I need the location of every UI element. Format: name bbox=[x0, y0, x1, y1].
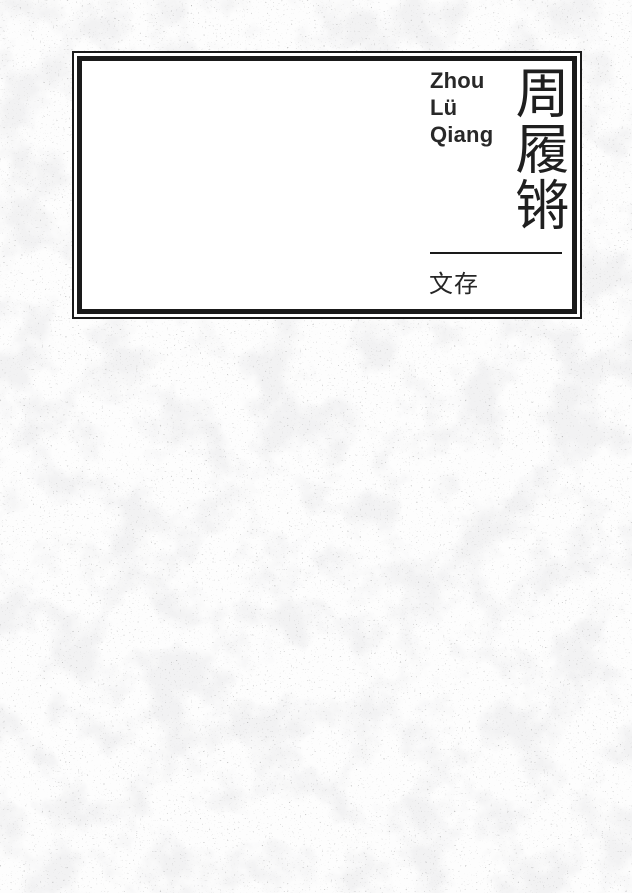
author-name-cjk-vertical: 周履锵 bbox=[508, 65, 566, 233]
subtitle-cjk: 文存 bbox=[429, 264, 479, 299]
title-frame: Zhou Lü Qiang 周履锵 文存 bbox=[72, 51, 582, 319]
divider-rule bbox=[430, 252, 562, 254]
title-frame-inner: Zhou Lü Qiang 周履锵 文存 bbox=[77, 56, 577, 314]
book-cover: Zhou Lü Qiang 周履锵 文存 bbox=[0, 0, 632, 893]
author-name-latin: Zhou Lü Qiang bbox=[430, 67, 493, 148]
